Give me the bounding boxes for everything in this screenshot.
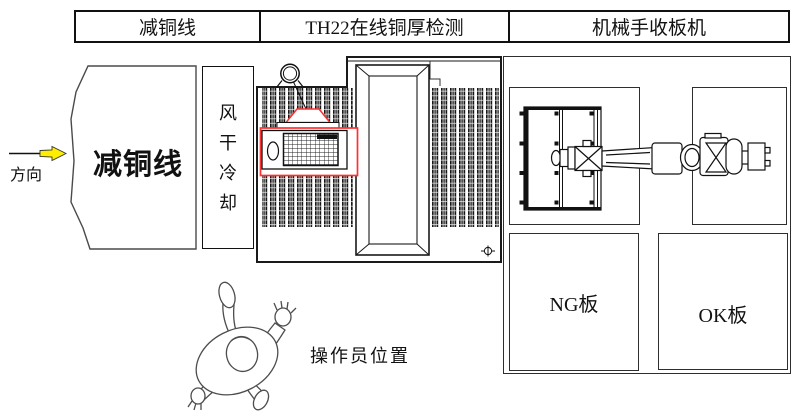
lens-icon — [268, 142, 279, 160]
header-label-copper-line: 减铜线 — [139, 13, 196, 40]
copper-line-label: 减铜线 — [80, 141, 196, 183]
direction-arrow-icon — [9, 147, 66, 161]
header-cell-robot: 机械手收板机 — [508, 12, 788, 41]
header-cell-copper-line: 减铜线 — [76, 12, 259, 41]
rack-zone-box — [509, 87, 640, 225]
conveyor-right — [429, 88, 499, 227]
header-label-robot: 机械手收板机 — [592, 13, 706, 40]
ok-board-label: OK板 — [699, 299, 748, 328]
conveyor-left — [262, 88, 353, 227]
shoe-left — [216, 280, 238, 309]
torso — [185, 314, 290, 408]
operator-position-label: 操作员位置 — [310, 342, 410, 368]
inspection-machine — [257, 57, 501, 262]
hoist-ring-icon — [277, 64, 307, 109]
header-label-th22: TH22在线铜厚检测 — [305, 13, 463, 40]
direction-label: 方向 — [10, 161, 42, 185]
cooling-char-1: 风 — [219, 104, 237, 122]
ng-board-box: NG板 — [509, 233, 639, 371]
robot-base-zone-box — [692, 87, 787, 225]
cooling-char-3: 冷 — [219, 164, 237, 182]
cooling-char-2: 干 — [219, 134, 237, 152]
operator-figure — [185, 280, 296, 412]
section-header-row: 减铜线 TH22在线铜厚检测 机械手收板机 — [74, 10, 790, 43]
head — [223, 334, 261, 375]
hand-right — [275, 308, 291, 326]
header-cell-th22: TH22在线铜厚检测 — [259, 12, 508, 41]
cooling-char-4: 却 — [219, 194, 237, 212]
ng-board-label: NG板 — [550, 288, 599, 317]
air-dry-cooling-box: 风 干 冷 却 — [202, 66, 254, 249]
center-mark-icon — [481, 246, 495, 257]
hand-left — [191, 388, 205, 404]
gantry-beam — [356, 65, 429, 255]
th22-measuring-head — [261, 109, 358, 176]
control-panel — [284, 134, 339, 166]
shoe-right — [250, 388, 271, 412]
layout-diagram: 减铜线 TH22在线铜厚检测 机械手收板机 NG板 OK板 — [0, 0, 800, 412]
ok-board-box: OK板 — [658, 233, 788, 370]
